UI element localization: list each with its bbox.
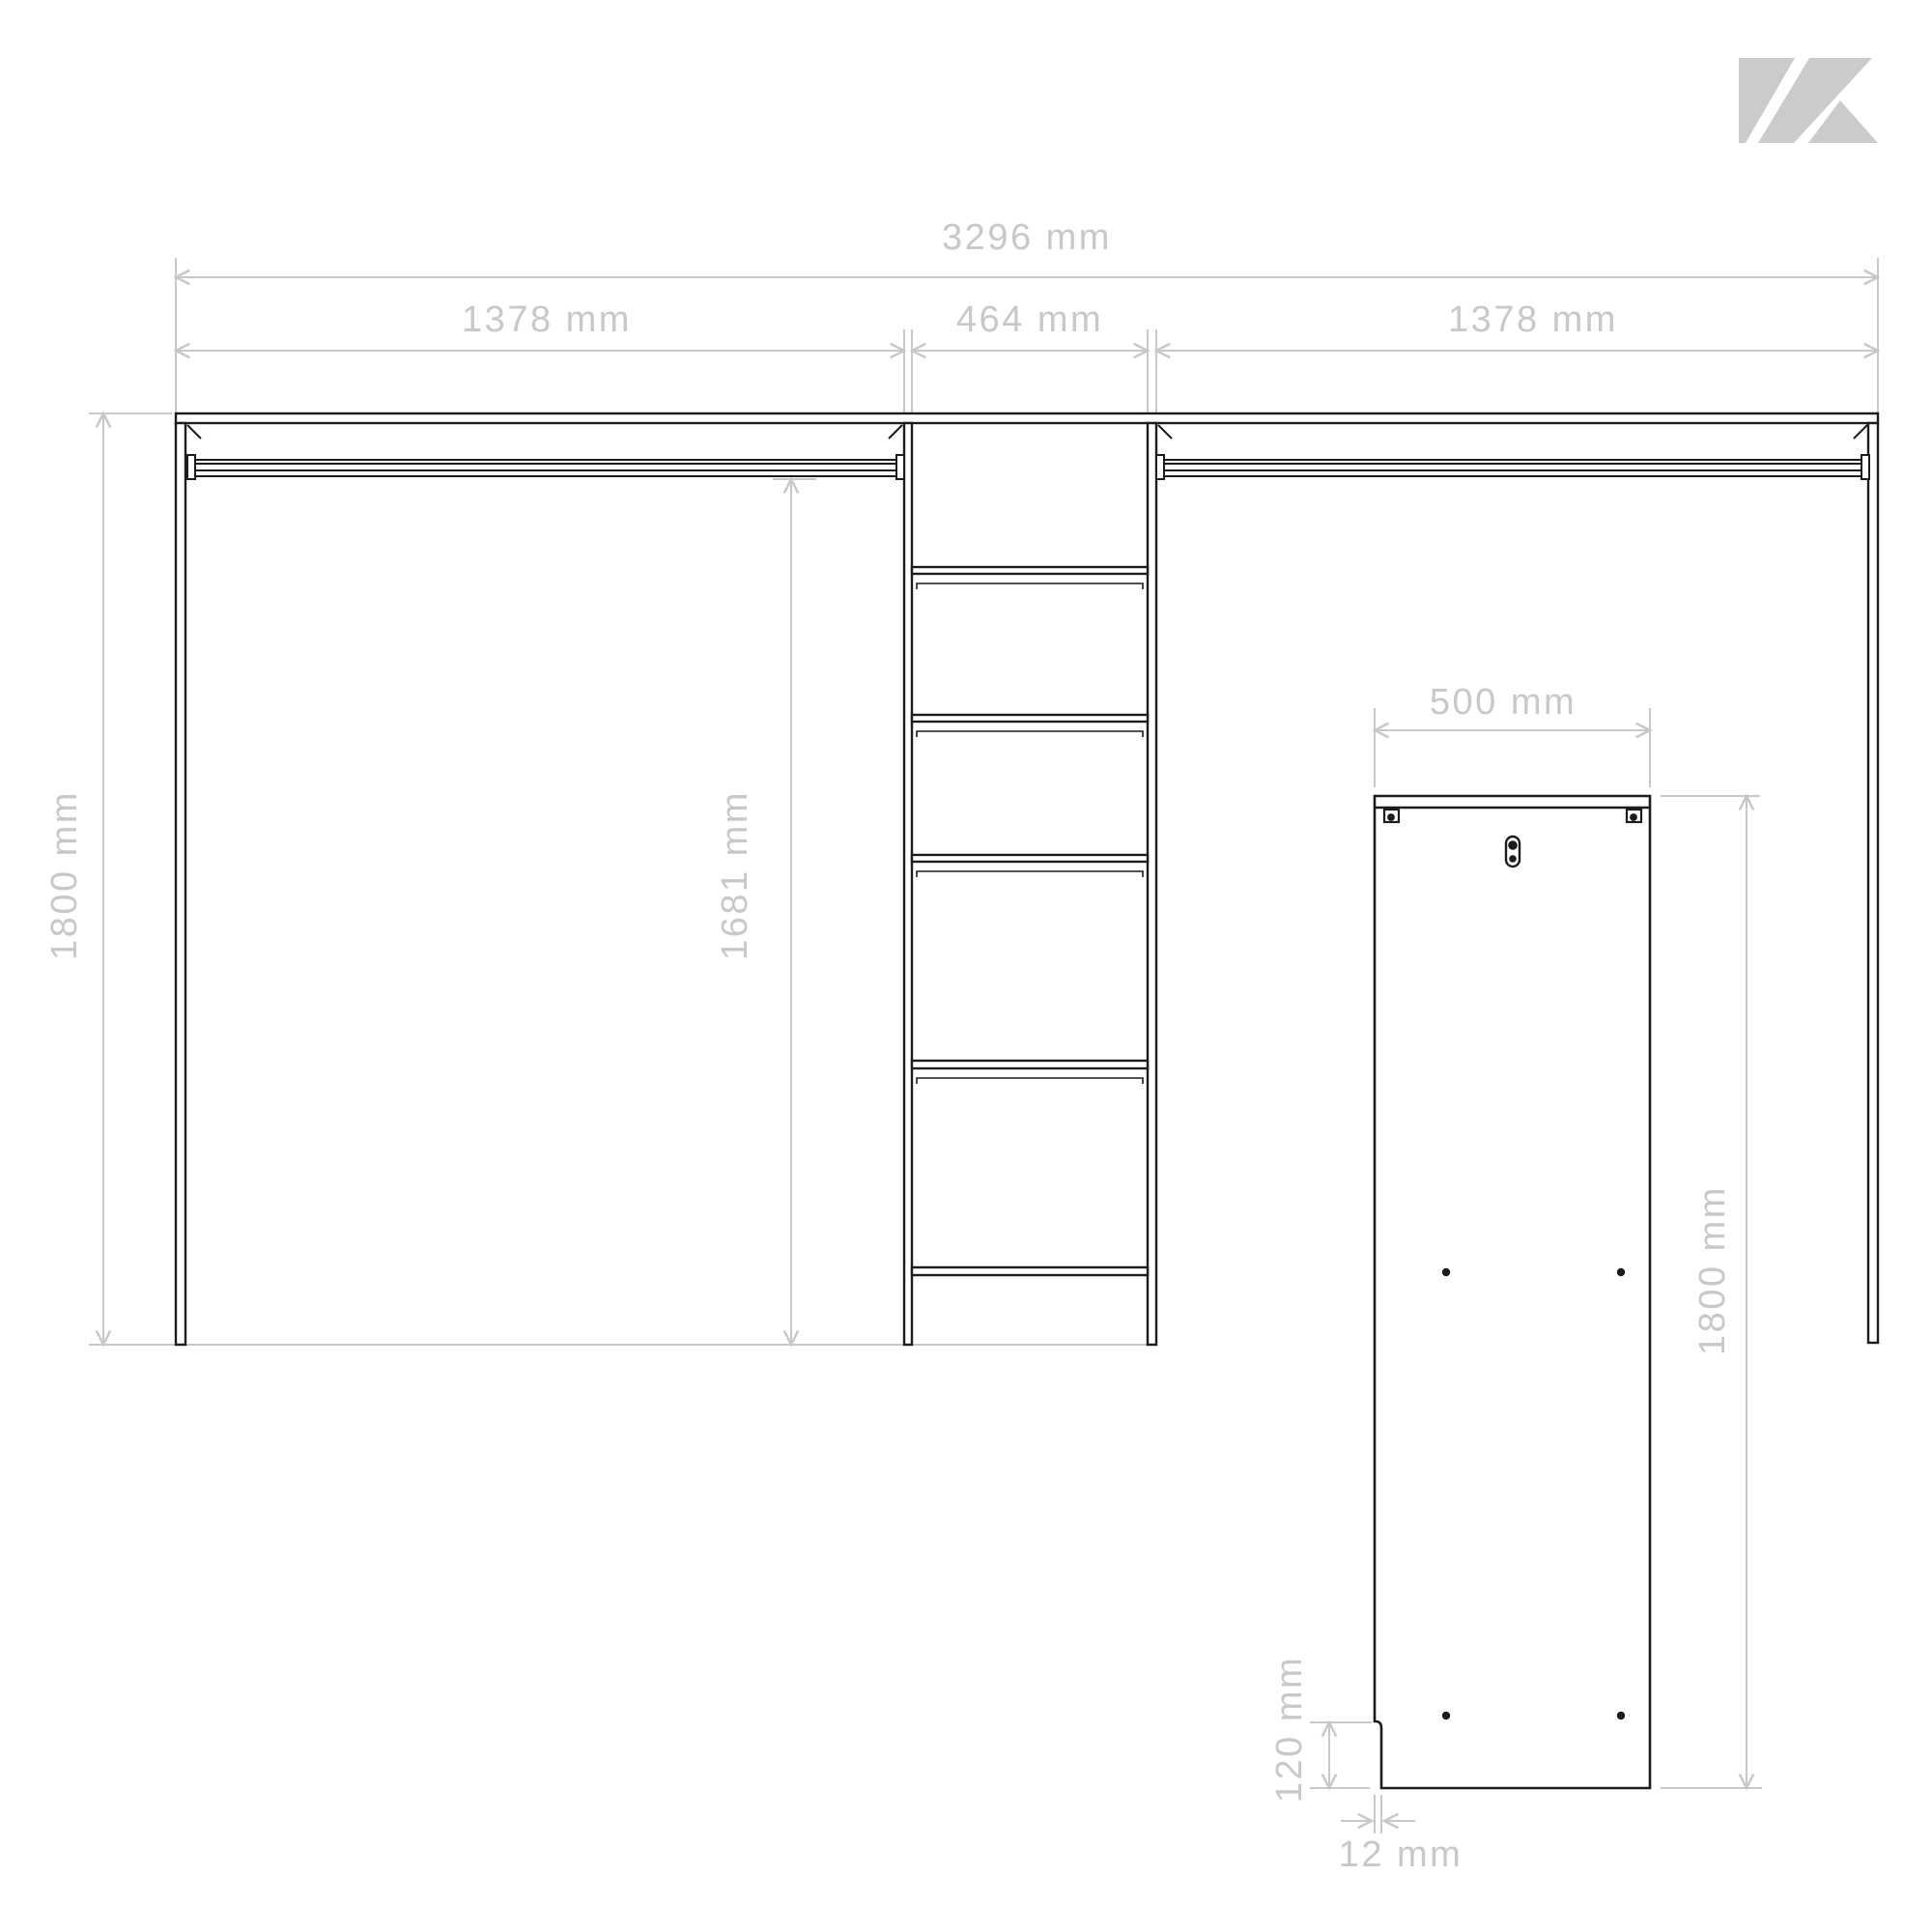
corner-fitting bbox=[1854, 425, 1867, 439]
dim-label-notch-height: 120 mm bbox=[1271, 1656, 1308, 1803]
shelf-reveal bbox=[917, 871, 1143, 877]
shelf bbox=[912, 855, 1148, 862]
keyhole-icon bbox=[1506, 837, 1520, 867]
rail-bracket bbox=[1861, 455, 1869, 479]
wall-bracket-icon bbox=[1627, 810, 1641, 822]
shelf bbox=[912, 1267, 1148, 1275]
shelf bbox=[912, 1061, 1148, 1068]
wall-bracket-icon bbox=[1384, 810, 1399, 822]
dim-label-total-height: 1800 mm bbox=[46, 790, 83, 960]
corner-fitting bbox=[1158, 425, 1172, 439]
dim-label-notch-width: 12 mm bbox=[1339, 1836, 1463, 1873]
dim-label-total-width: 3296 mm bbox=[942, 219, 1112, 256]
rail-bracket bbox=[896, 455, 904, 479]
dowel-hole bbox=[1442, 1712, 1450, 1719]
brand-logo-icon bbox=[1739, 58, 1878, 143]
top-panel bbox=[176, 413, 1878, 423]
dim-label-center-width: 464 mm bbox=[956, 301, 1103, 338]
rail-bracket bbox=[1156, 455, 1164, 479]
side-panel-outline bbox=[1375, 796, 1650, 1788]
technical-drawing-page: 3296 mm 1378 mm 464 mm 1378 mm 1800 mm 1… bbox=[0, 0, 1932, 1932]
tower-left-panel bbox=[904, 423, 912, 1345]
dim-label-interior-height: 1681 mm bbox=[717, 790, 753, 960]
dim-label-left-width: 1378 mm bbox=[462, 301, 632, 338]
dim-label-right-width: 1378 mm bbox=[1448, 301, 1618, 338]
right-side-panel bbox=[1868, 423, 1878, 1343]
drawing-canvas bbox=[0, 0, 1932, 1932]
dim-label-panel-height: 1800 mm bbox=[1694, 1185, 1731, 1355]
shelf bbox=[912, 715, 1148, 722]
left-side-panel bbox=[176, 423, 185, 1345]
hanging-rail-left bbox=[187, 455, 904, 479]
rail-bracket bbox=[187, 455, 195, 479]
dowel-hole bbox=[1617, 1712, 1625, 1719]
corner-fitting bbox=[187, 425, 201, 439]
side-panel-drawing bbox=[1375, 796, 1650, 1788]
corner-fitting bbox=[889, 425, 902, 439]
shelf-reveal bbox=[917, 583, 1143, 589]
tower-right-panel bbox=[1148, 423, 1156, 1345]
shelf-reveal bbox=[917, 1078, 1143, 1084]
shelf bbox=[912, 567, 1148, 574]
hanging-rail-right bbox=[1156, 455, 1869, 479]
dowel-hole bbox=[1442, 1268, 1450, 1276]
shelf-reveal bbox=[917, 731, 1143, 737]
dowel-hole bbox=[1617, 1268, 1625, 1276]
dim-label-panel-width: 500 mm bbox=[1430, 684, 1577, 721]
